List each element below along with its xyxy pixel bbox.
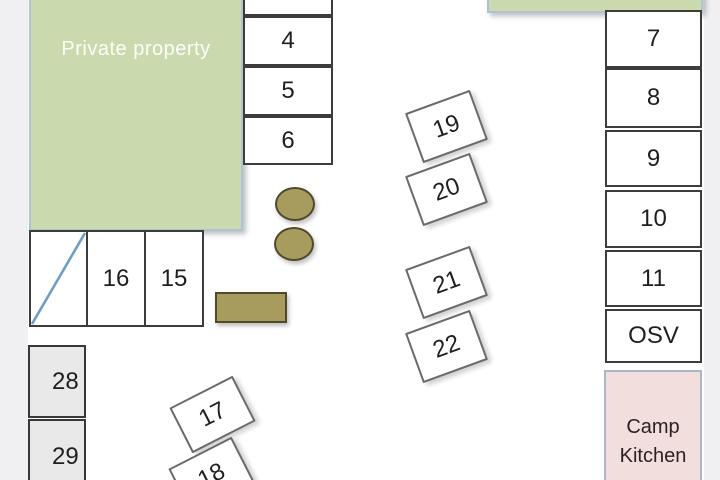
page-edge-left — [0, 0, 28, 480]
private-property-area: Private property — [29, 0, 243, 231]
site-box-5: 5 — [243, 66, 333, 116]
site-box-29: 29 — [28, 419, 86, 480]
diagonal-line — [31, 232, 86, 325]
site-box-9: 9 — [605, 130, 702, 187]
site-label: 7 — [647, 25, 660, 53]
site-label: 5 — [281, 77, 294, 105]
site-box-6: 6 — [243, 116, 333, 165]
camp-kitchen-area: Camp Kitchen — [604, 370, 702, 480]
campground-site-map: Private property 3 4 5 6 7 8 9 10 11 OSV… — [0, 0, 720, 480]
site-label: 15 — [161, 265, 188, 293]
site-box-19: 19 — [405, 90, 488, 163]
site-box-20: 20 — [405, 153, 488, 226]
site-box-3: 3 — [243, 0, 333, 16]
olive-ellipse-bottom — [274, 227, 314, 261]
site-box-4: 4 — [243, 16, 333, 66]
site-box-10: 10 — [605, 190, 702, 248]
site-label: 28 — [52, 368, 79, 396]
site-box-17: 17 — [169, 376, 255, 454]
site-box-28: 28 — [28, 345, 86, 418]
private-property-label: Private property — [31, 38, 241, 61]
site-label: 9 — [647, 145, 660, 173]
site-box-8: 8 — [605, 68, 702, 128]
site-label: 22 — [429, 329, 464, 364]
site-label: 19 — [429, 109, 464, 144]
olive-rectangle — [215, 292, 287, 323]
site-label: 17 — [194, 396, 231, 433]
site-box-osv: OSV — [605, 309, 702, 363]
site-label: 3 — [281, 0, 294, 6]
site-box-7: 7 — [605, 10, 702, 68]
site-label: 11 — [641, 265, 666, 293]
site-label: 6 — [281, 127, 294, 155]
site-label: OSV — [628, 322, 679, 350]
site-label: 21 — [429, 265, 464, 300]
site-label: 8 — [647, 84, 660, 112]
site-box-16: 16 — [86, 230, 146, 327]
site-box-22: 22 — [405, 310, 488, 383]
olive-ellipse-top — [275, 187, 315, 221]
site-label: 20 — [429, 172, 464, 207]
site-label: 4 — [281, 27, 294, 55]
site-box-15: 15 — [144, 230, 204, 327]
site-label: 29 — [52, 443, 79, 471]
site-label: 18 — [193, 457, 230, 480]
site-label: 16 — [103, 265, 130, 293]
site-label: 10 — [640, 205, 667, 233]
diagonal-marked-site-box — [29, 230, 88, 327]
camp-kitchen-label: Camp Kitchen — [613, 413, 693, 471]
site-box-11: 11 — [605, 250, 702, 307]
page-edge-right — [704, 0, 720, 480]
site-box-21: 21 — [405, 246, 488, 319]
